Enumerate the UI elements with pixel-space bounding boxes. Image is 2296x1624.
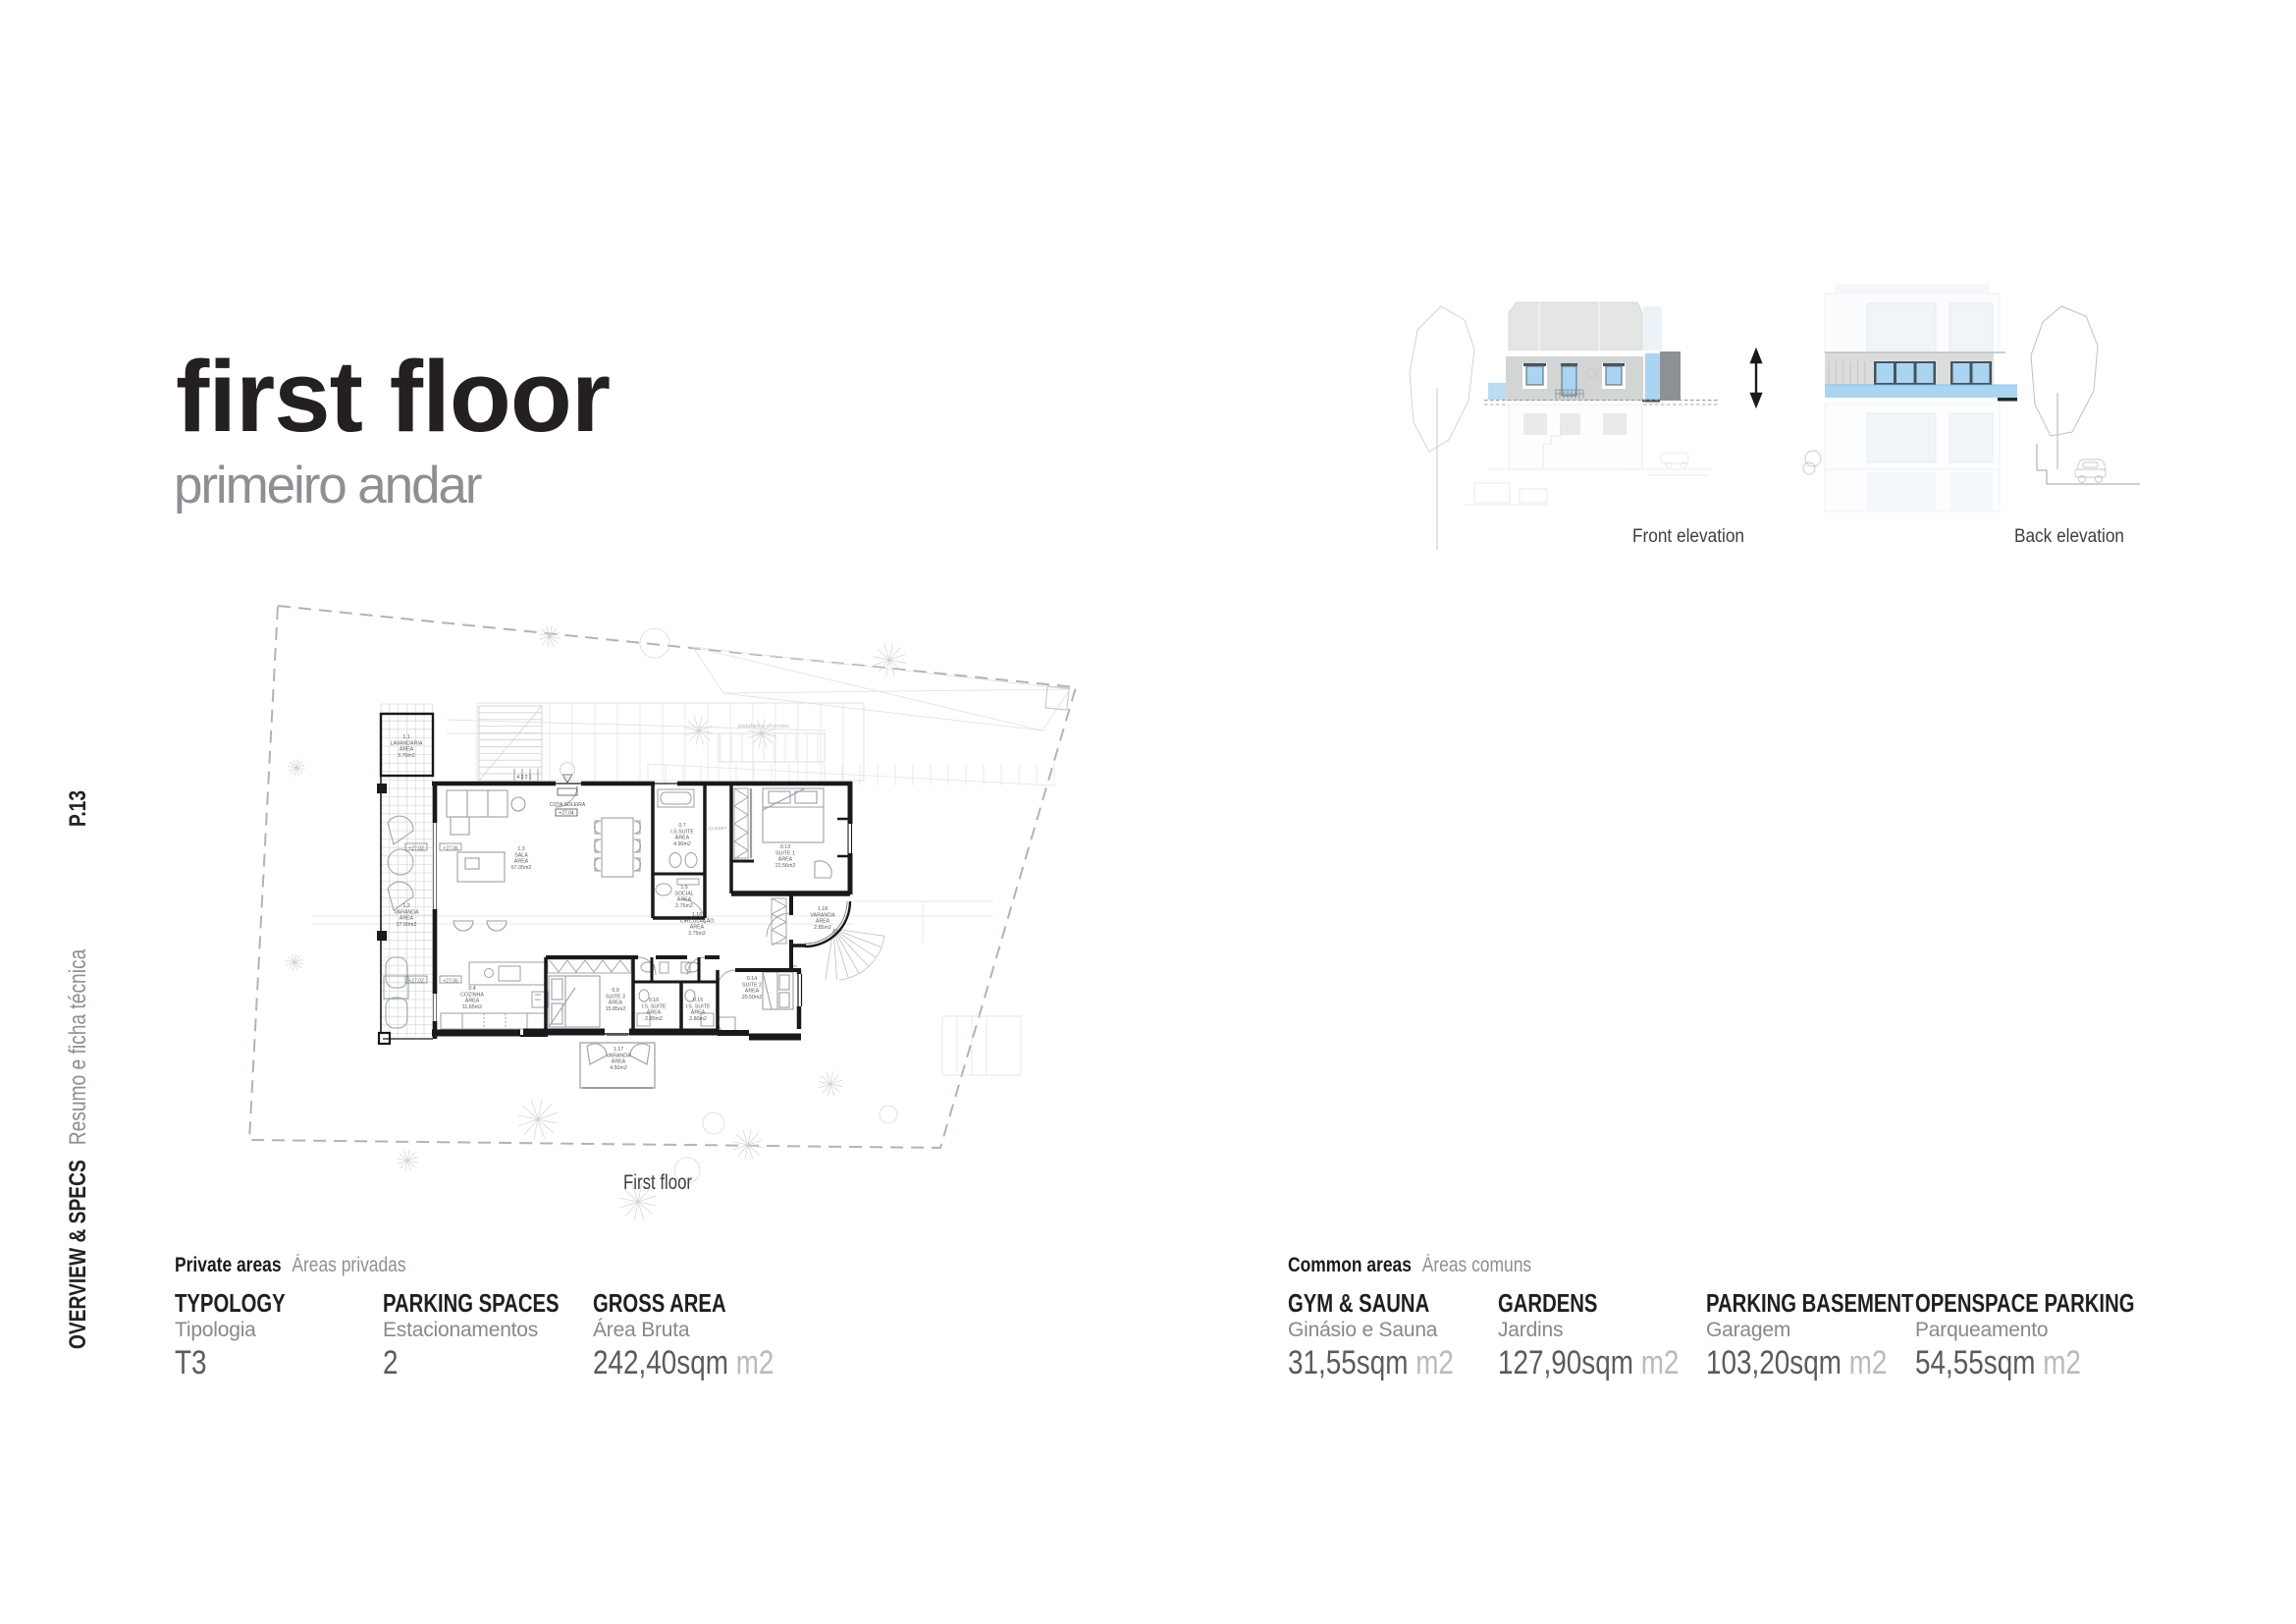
svg-text:+27.06: +27.06 xyxy=(443,979,458,985)
svg-text:4 3 2 1: 4 3 2 1 xyxy=(516,775,532,781)
svg-text:Back elevation: Back elevation xyxy=(2014,526,2124,547)
svg-text:1.17VARANDAÁREA4.50m2: 1.17VARANDAÁREA4.50m2 xyxy=(606,1047,631,1071)
svg-text:1.3SALAÁREA57.05m2: 1.3SALAÁREA57.05m2 xyxy=(511,846,532,871)
svg-text:0.13SUITE 1ÁREA21.56m2: 0.13SUITE 1ÁREA21.56m2 xyxy=(775,844,796,869)
svg-text:1.1LAVANDARIAÁREA3.70m2: 1.1LAVANDARIAÁREA3.70m2 xyxy=(391,734,423,759)
svg-text:+27.02: +27.02 xyxy=(408,979,424,985)
svg-text:0.7I.S.SUITEÁREA4.90m2: 0.7I.S.SUITEÁREA4.90m2 xyxy=(670,823,694,847)
svg-text:0.4COZINHAÁREA11.65m2: 0.4COZINHAÁREA11.65m2 xyxy=(460,986,484,1010)
svg-text:+27.06: +27.06 xyxy=(443,846,458,852)
svg-text:COTA SOLEIRA: COTA SOLEIRA xyxy=(550,802,586,808)
svg-text:CLOSET: CLOSET xyxy=(708,826,726,832)
svg-text:+27.02: +27.02 xyxy=(408,846,424,852)
svg-text:1.18VARANDAÁREA2.85m2: 1.18VARANDAÁREA2.85m2 xyxy=(810,906,835,931)
svg-text:plataforma vivendas: plataforma vivendas xyxy=(738,724,789,730)
svg-text:Front elevation: Front elevation xyxy=(1632,526,1744,547)
svg-text:0.9SUITE 3ÁREA15.85m2: 0.9SUITE 3ÁREA15.85m2 xyxy=(606,988,626,1012)
svg-text:1.5SOCIALÁREA2.75m2: 1.5SOCIALÁREA2.75m2 xyxy=(674,885,693,909)
svg-text:+27.04: +27.04 xyxy=(559,811,574,817)
svg-text:0.14SUITE 2ÁREA20.50m2: 0.14SUITE 2ÁREA20.50m2 xyxy=(742,976,763,1001)
